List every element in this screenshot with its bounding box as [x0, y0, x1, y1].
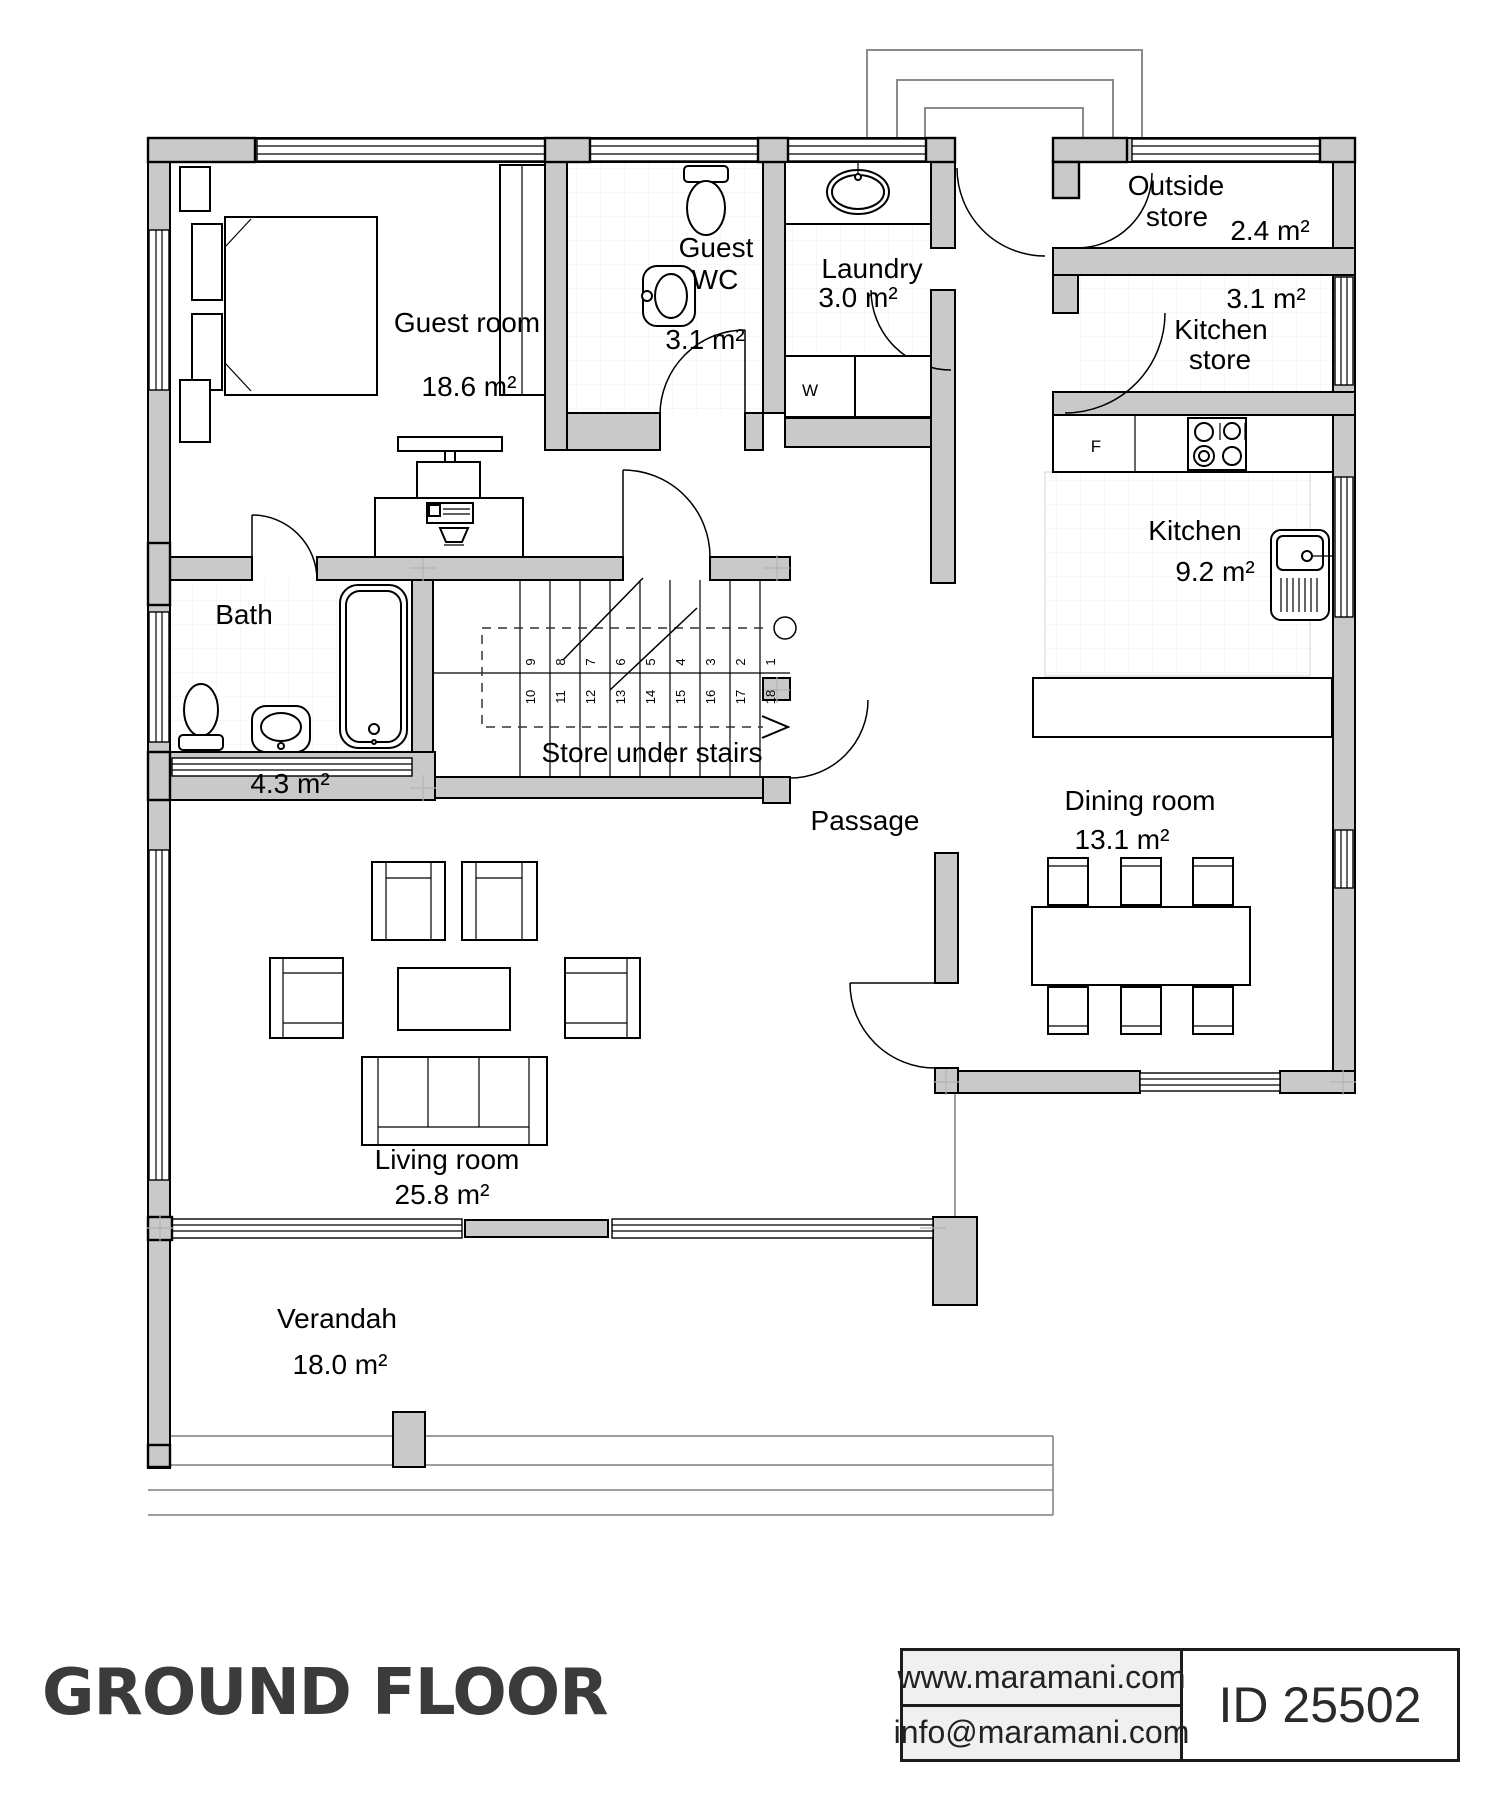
svg-text:9: 9 [523, 658, 538, 665]
stair-reference-circle [774, 617, 796, 639]
main-entrance-door [957, 168, 1045, 256]
email-cell: info@maramani.com [903, 1704, 1180, 1760]
guest-wc-label-1: Guest [679, 232, 754, 263]
desk-computer [375, 437, 523, 557]
bath-door [252, 515, 317, 580]
side-chair [270, 958, 343, 1038]
store-under-stairs-label: Store under stairs [542, 737, 763, 768]
nightstands [180, 167, 210, 442]
washing-machine: W [785, 356, 931, 417]
guest-room-area: 18.6 m² [422, 371, 517, 402]
stove [1188, 418, 1246, 470]
svg-text:16: 16 [703, 690, 718, 704]
bath-area: 4.3 m² [250, 768, 329, 799]
footer-table: www.maramani.com info@maramani.com ID 25… [900, 1648, 1460, 1762]
page-title: GROUND FLOOR [42, 1656, 607, 1730]
outside-store-area: 2.4 m² [1230, 215, 1309, 246]
guest-room-door [623, 470, 710, 557]
washer-label: W [802, 381, 818, 400]
kitchen-label: Kitchen [1148, 515, 1241, 546]
laundry-sink [785, 162, 931, 224]
entrance-opening [956, 135, 1054, 165]
kitchen-sink [1271, 530, 1333, 620]
wc-sink [642, 266, 695, 326]
footer-contact-column: www.maramani.com info@maramani.com [903, 1651, 1183, 1759]
outside-store-label-1: Outside [1128, 170, 1225, 201]
svg-text:5: 5 [643, 658, 658, 665]
website-cell: www.maramani.com [903, 1651, 1180, 1704]
armchair [372, 862, 445, 940]
svg-text:4: 4 [673, 658, 688, 665]
svg-text:8: 8 [553, 658, 568, 665]
living-room-area: 25.8 m² [395, 1179, 490, 1210]
sliding-door-panel [465, 1220, 608, 1237]
svg-text:3: 3 [703, 658, 718, 665]
kitchen-store-label-2: store [1189, 344, 1251, 375]
kitchen-store-area: 3.1 m² [1226, 283, 1305, 314]
svg-text:13: 13 [613, 690, 628, 704]
stair-numbers: 9 8 7 6 5 4 3 2 1 10 11 12 13 14 15 16 1… [523, 658, 778, 704]
outside-store-label-2: store [1146, 201, 1208, 232]
porch-steps [867, 50, 1142, 138]
dining-room-area: 13.1 m² [1075, 824, 1170, 855]
svg-text:10: 10 [523, 690, 538, 704]
stair-break-line [563, 578, 643, 660]
guest-wc-label-2: WC [692, 264, 739, 295]
understairs-door [790, 700, 868, 778]
svg-text:7: 7 [583, 658, 598, 665]
floor-plan-page: W F [0, 0, 1500, 1800]
stair-arrow [762, 716, 788, 738]
guest-room-label: Guest room [394, 307, 540, 338]
armchair [462, 862, 537, 940]
verandah-area: 18.0 m² [293, 1349, 388, 1380]
coffee-table [398, 968, 510, 1030]
breakfast-counter [1033, 678, 1332, 737]
kitchen-store-label-1: Kitchen [1174, 314, 1267, 345]
laundry-area: 3.0 m² [818, 282, 897, 313]
wardrobe [500, 165, 545, 395]
passage-label: Passage [811, 805, 920, 836]
plan-id-cell: ID 25502 [1183, 1651, 1457, 1759]
svg-text:14: 14 [643, 690, 658, 704]
svg-text:15: 15 [673, 690, 688, 704]
bed [192, 217, 377, 395]
laundry-label: Laundry [821, 253, 922, 284]
svg-text:2: 2 [733, 658, 748, 665]
wc-toilet [684, 166, 728, 235]
bath-label: Bath [215, 599, 273, 630]
bathtub [340, 585, 407, 748]
dining-room-door [850, 983, 935, 1068]
stair-break-line [610, 608, 697, 690]
fridge-label: F [1091, 437, 1101, 456]
dining-table [1032, 907, 1250, 985]
verandah-label: Verandah [277, 1303, 397, 1334]
svg-text:1: 1 [763, 658, 778, 665]
side-chair [565, 958, 640, 1038]
sofa [362, 1057, 547, 1145]
svg-text:12: 12 [583, 690, 598, 704]
svg-text:17: 17 [733, 690, 748, 704]
living-room-label: Living room [375, 1144, 520, 1175]
svg-text:18: 18 [763, 690, 778, 704]
svg-text:6: 6 [613, 658, 628, 665]
kitchen-area: 9.2 m² [1175, 556, 1254, 587]
floor-plan-drawing: W F [0, 0, 1500, 1800]
dining-room-label: Dining room [1065, 785, 1216, 816]
guest-wc-area: 3.1 m² [665, 324, 744, 355]
svg-text:11: 11 [553, 690, 568, 704]
bath-sink [252, 706, 310, 752]
